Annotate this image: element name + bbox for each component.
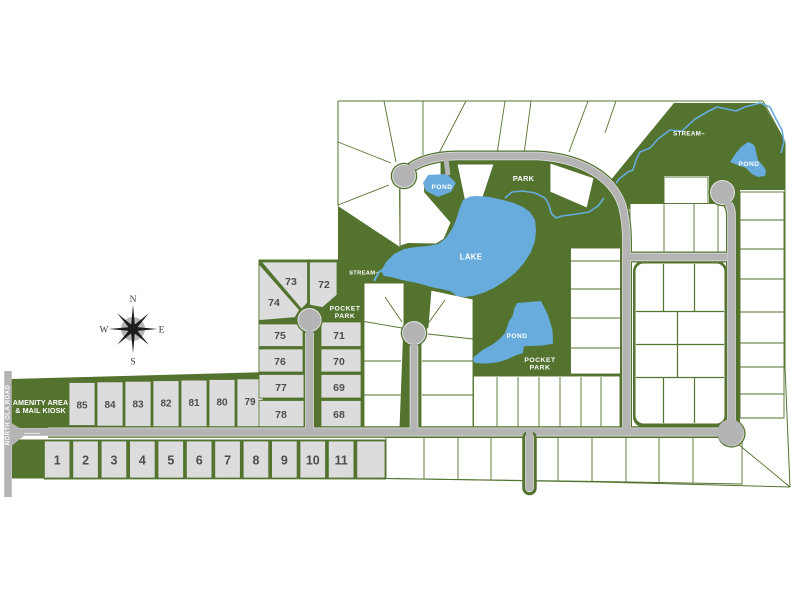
svg-text:NORTH OLA ROAD: NORTH OLA ROAD — [6, 385, 12, 446]
svg-text:80: 80 — [216, 398, 228, 409]
svg-text:9: 9 — [281, 454, 288, 468]
svg-text:82: 82 — [160, 399, 172, 410]
svg-text:3: 3 — [111, 454, 118, 468]
svg-text:76: 76 — [274, 356, 286, 368]
svg-text:POND: POND — [506, 333, 527, 340]
svg-text:69: 69 — [333, 382, 345, 394]
svg-text:79: 79 — [244, 397, 256, 408]
svg-text:& MAIL KIOSK: & MAIL KIOSK — [15, 406, 66, 415]
svg-text:75: 75 — [274, 330, 286, 342]
svg-text:6: 6 — [196, 454, 203, 468]
svg-text:5: 5 — [167, 454, 174, 468]
svg-text:4: 4 — [139, 454, 146, 468]
svg-text:74: 74 — [268, 297, 280, 309]
svg-text:STREAM–: STREAM– — [349, 271, 379, 277]
svg-text:1: 1 — [54, 454, 61, 468]
svg-text:PARK: PARK — [513, 174, 535, 183]
svg-text:78: 78 — [275, 409, 287, 421]
svg-text:68: 68 — [333, 409, 345, 421]
svg-text:PARK: PARK — [335, 313, 355, 320]
svg-text:85: 85 — [76, 401, 88, 412]
svg-text:84: 84 — [104, 400, 116, 411]
svg-text:PARK: PARK — [530, 364, 551, 371]
svg-text:E: E — [159, 326, 165, 336]
svg-text:72: 72 — [318, 279, 330, 291]
svg-text:2: 2 — [82, 454, 89, 468]
svg-text:71: 71 — [333, 330, 345, 342]
svg-text:POND: POND — [738, 161, 759, 168]
svg-text:S: S — [130, 358, 135, 368]
svg-text:POND: POND — [431, 184, 452, 191]
svg-text:10: 10 — [306, 454, 320, 468]
svg-text:LAKE: LAKE — [460, 253, 482, 262]
svg-text:83: 83 — [132, 399, 144, 410]
svg-text:11: 11 — [335, 454, 348, 468]
svg-text:POCKET: POCKET — [524, 357, 556, 364]
svg-text:STREAM–: STREAM– — [673, 131, 705, 138]
svg-text:77: 77 — [275, 382, 287, 394]
svg-text:81: 81 — [188, 398, 200, 409]
svg-text:POCKET: POCKET — [330, 306, 361, 313]
svg-text:73: 73 — [285, 276, 297, 288]
svg-text:7: 7 — [224, 454, 231, 468]
svg-text:8: 8 — [253, 454, 260, 468]
svg-text:W: W — [100, 326, 109, 336]
svg-text:70: 70 — [333, 356, 345, 368]
svg-text:N: N — [130, 295, 137, 305]
